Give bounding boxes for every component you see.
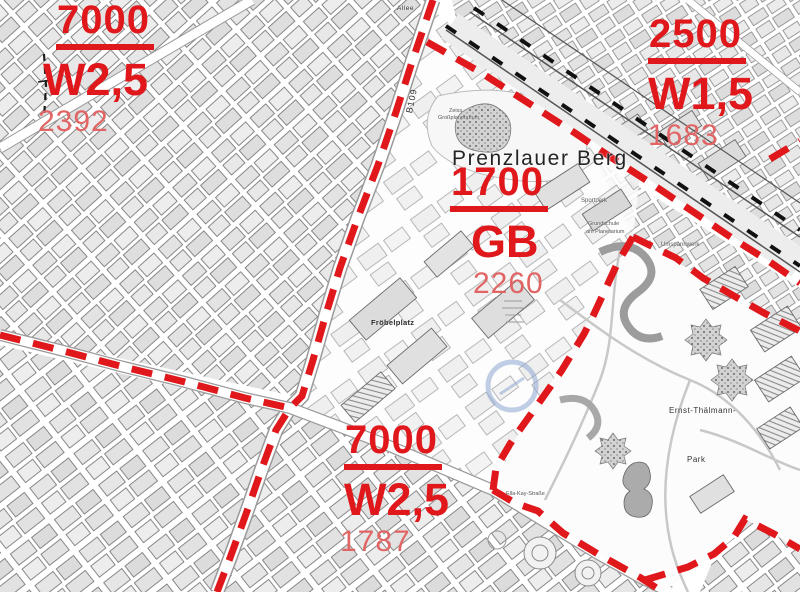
map-label: Umspannwerk: [661, 242, 699, 248]
zone-value: 1700: [450, 162, 548, 212]
zone-value: 2500: [648, 14, 746, 64]
map-label: Park: [687, 455, 705, 464]
land-value-map: Prenzlauer Berg AlleeB109ZeissGroßplanet…: [0, 0, 800, 592]
zone-type-code: W2,5: [344, 477, 449, 522]
zone-label-center: 1700 GB 2260: [450, 162, 548, 299]
zone-indicative-value: 2260: [473, 269, 548, 299]
zone-indicative-value: 1683: [648, 121, 753, 151]
map-label: Fröbelplatz: [371, 318, 414, 327]
zone-type-code: W1,5: [648, 71, 753, 116]
zone-label-bottom-center: 7000 W2,5 1787: [344, 420, 449, 557]
zone-label-top-left: 7000 W2,5 2392: [38, 0, 154, 137]
zone-value: 7000: [344, 420, 442, 470]
zone-type-code: W2,5: [43, 57, 154, 102]
zone-value: 7000: [56, 0, 154, 50]
map-label: Großplanetarium: [438, 115, 479, 121]
map-label: Ernst-Thälmann-: [669, 406, 736, 415]
zone-type-code: GB: [471, 219, 548, 264]
map-label: am Planetarium: [586, 229, 625, 235]
map-label: Allee: [397, 5, 414, 12]
map-label: Grundschule: [588, 221, 619, 227]
map-label: Zeiss: [449, 108, 462, 114]
map-label: Sportpark: [581, 198, 607, 204]
zone-label-top-right: 2500 W1,5 1683: [648, 14, 753, 151]
zone-indicative-value: 1787: [340, 527, 449, 557]
map-label: Ella-Kay-Straße: [506, 491, 545, 497]
zone-indicative-value: 2392: [38, 107, 154, 137]
